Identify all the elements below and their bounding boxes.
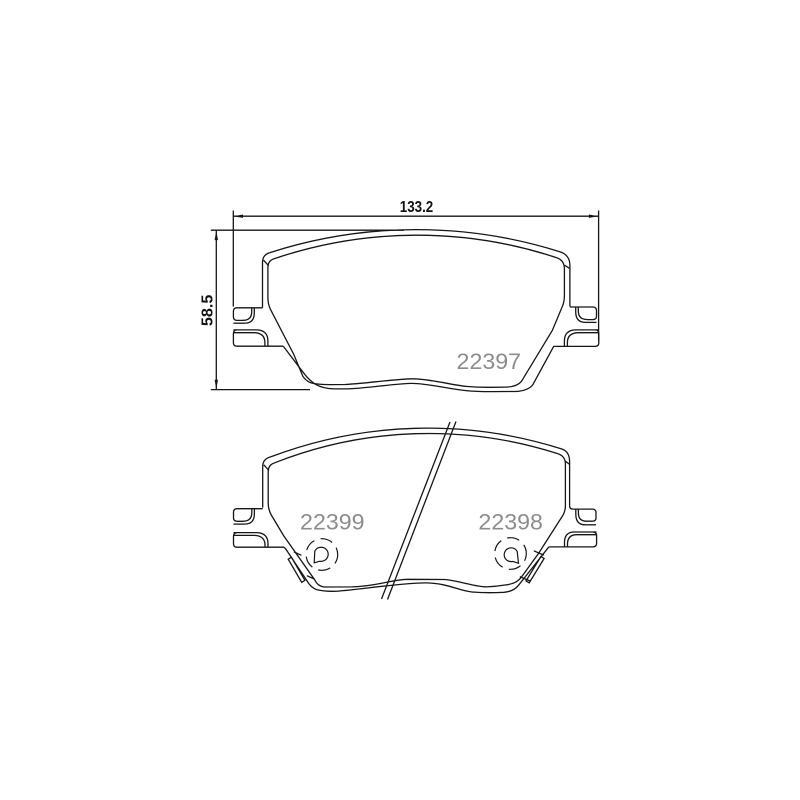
- svg-text:22397: 22397: [457, 349, 522, 374]
- svg-text:58.5: 58.5: [200, 294, 217, 326]
- svg-text:133.2: 133.2: [400, 199, 434, 216]
- svg-text:22399: 22399: [300, 509, 365, 534]
- svg-text:22398: 22398: [478, 510, 543, 535]
